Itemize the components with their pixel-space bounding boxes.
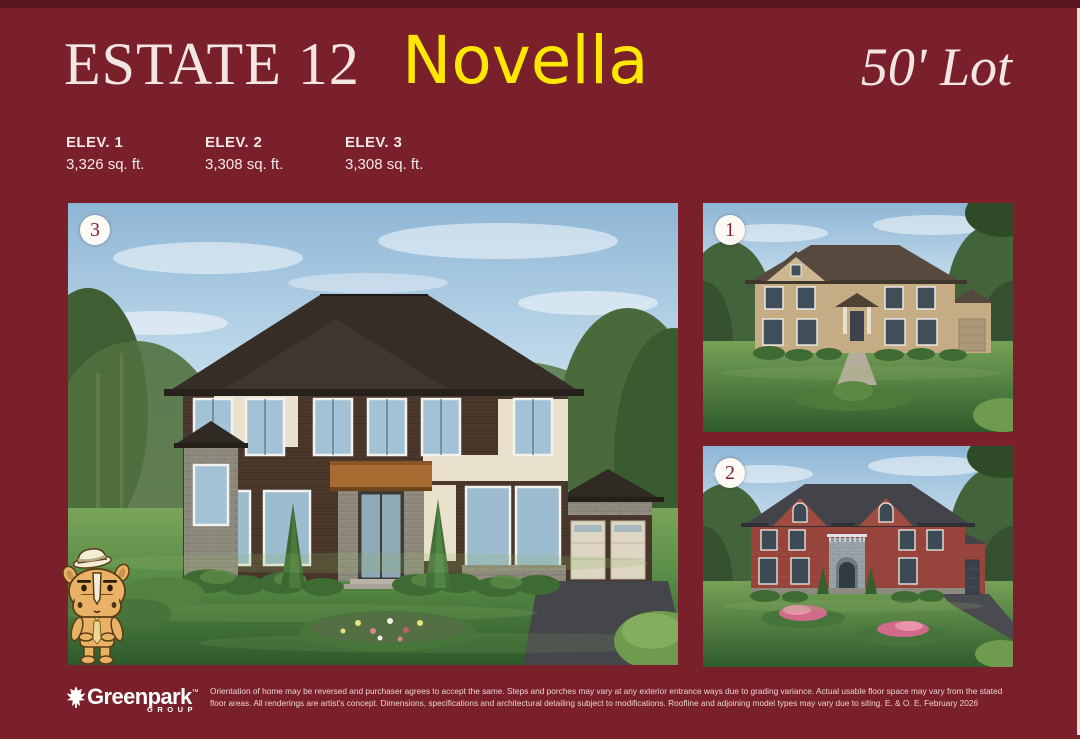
rhino-mascot bbox=[60, 547, 134, 665]
brochure-page: ESTATE 12 Novella 50' Lot ELEV. 1 3,326 … bbox=[0, 0, 1080, 739]
main-rendering-elevation-3: 3 bbox=[68, 203, 678, 665]
elevation-3-illustration bbox=[68, 203, 678, 665]
disclaimer-line-2: floor areas. All renderings are artist's… bbox=[210, 698, 1020, 710]
elevation-2-label: ELEV. 2 bbox=[205, 134, 283, 151]
rendering-elevation-1: 1 bbox=[703, 203, 1013, 432]
elevation-1-area: 3,326 sq. ft. bbox=[66, 156, 144, 173]
top-edge-band bbox=[0, 0, 1080, 8]
maple-leaf-icon bbox=[66, 686, 86, 708]
elevation-2-illustration bbox=[703, 446, 1013, 667]
lot-size-label: 50' Lot bbox=[861, 40, 1012, 94]
elevation-1-illustration bbox=[703, 203, 1013, 432]
brand-trademark: ™ bbox=[192, 689, 199, 696]
elevation-2-area: 3,308 sq. ft. bbox=[205, 156, 283, 173]
elevation-1-label: ELEV. 1 bbox=[66, 134, 144, 151]
elevation-3-area: 3,308 sq. ft. bbox=[345, 156, 423, 173]
rhino-mascot-illustration bbox=[60, 547, 134, 665]
elevation-badge-2: 2 bbox=[715, 458, 745, 488]
elevation-badge-3: 3 bbox=[80, 215, 110, 245]
model-name: Novella bbox=[402, 28, 649, 94]
elevation-badge-1: 1 bbox=[715, 215, 745, 245]
disclaimer-text: Orientation of home may be reversed and … bbox=[210, 686, 1020, 709]
elevation-spec-1: ELEV. 1 3,326 sq. ft. bbox=[66, 134, 144, 173]
elevation-spec-3: ELEV. 3 3,308 sq. ft. bbox=[345, 134, 423, 173]
elevation-spec-2: ELEV. 2 3,308 sq. ft. bbox=[205, 134, 283, 173]
brand-logo: Greenpark ™ GROUP bbox=[66, 686, 200, 714]
rendering-elevation-2: 2 bbox=[703, 446, 1013, 667]
series-title: ESTATE 12 bbox=[64, 34, 360, 94]
disclaimer-line-1: Orientation of home may be reversed and … bbox=[210, 686, 1020, 698]
elevation-3-label: ELEV. 3 bbox=[345, 134, 423, 151]
